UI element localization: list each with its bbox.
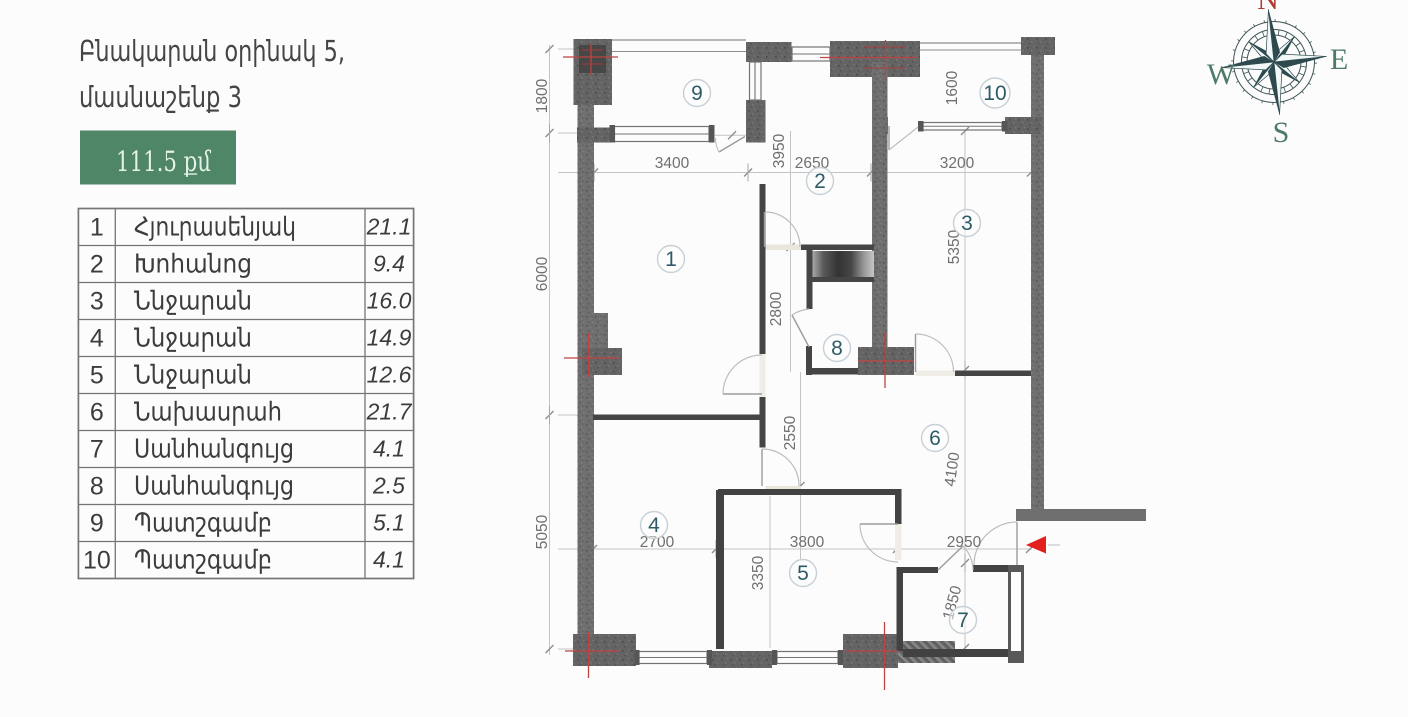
svg-text:2800: 2800 [768, 291, 785, 326]
svg-text:7: 7 [90, 436, 104, 464]
svg-text:1800: 1800 [534, 78, 551, 113]
svg-text:4.1: 4.1 [373, 436, 405, 462]
svg-text:8: 8 [831, 337, 843, 360]
svg-text:4.1: 4.1 [373, 547, 405, 573]
svg-text:8: 8 [90, 473, 104, 501]
svg-text:5050: 5050 [534, 514, 551, 549]
svg-text:5.1: 5.1 [373, 510, 405, 536]
svg-text:9: 9 [691, 82, 703, 105]
svg-text:3800: 3800 [790, 534, 825, 551]
svg-text:3400: 3400 [655, 155, 690, 172]
svg-text:4: 4 [90, 325, 104, 353]
svg-text:2: 2 [814, 170, 826, 193]
svg-text:4100: 4100 [942, 451, 964, 488]
svg-text:1600: 1600 [944, 70, 961, 105]
svg-text:2950: 2950 [947, 534, 982, 551]
svg-text:12.6: 12.6 [367, 362, 412, 388]
svg-text:3200: 3200 [940, 155, 975, 172]
svg-text:21.7: 21.7 [366, 399, 413, 425]
svg-text:10: 10 [983, 82, 1006, 105]
svg-text:9: 9 [90, 510, 104, 538]
svg-text:4: 4 [648, 514, 660, 537]
svg-text:10: 10 [83, 547, 111, 575]
svg-text:3350: 3350 [750, 555, 767, 590]
svg-text:9.4: 9.4 [373, 251, 405, 277]
svg-text:16.0: 16.0 [367, 288, 412, 314]
svg-text:5: 5 [90, 362, 104, 390]
svg-text:2550: 2550 [782, 415, 799, 450]
svg-text:S: S [1273, 116, 1290, 149]
svg-text:21.1: 21.1 [366, 214, 412, 240]
svg-text:5: 5 [797, 562, 809, 585]
svg-text:1: 1 [90, 214, 104, 242]
svg-text:W: W [1207, 58, 1236, 91]
svg-text:7: 7 [957, 609, 969, 632]
svg-text:6: 6 [90, 399, 104, 427]
svg-text:1: 1 [665, 248, 677, 271]
svg-text:2: 2 [90, 251, 104, 279]
svg-text:N: N [1257, 0, 1279, 16]
svg-text:3950: 3950 [771, 133, 788, 168]
svg-text:E: E [1330, 43, 1348, 76]
svg-text:3: 3 [90, 288, 104, 316]
svg-text:6: 6 [929, 427, 941, 450]
svg-text:3: 3 [961, 212, 973, 235]
svg-text:14.9: 14.9 [367, 325, 412, 351]
svg-text:2.5: 2.5 [372, 473, 405, 499]
svg-text:6000: 6000 [534, 256, 551, 291]
